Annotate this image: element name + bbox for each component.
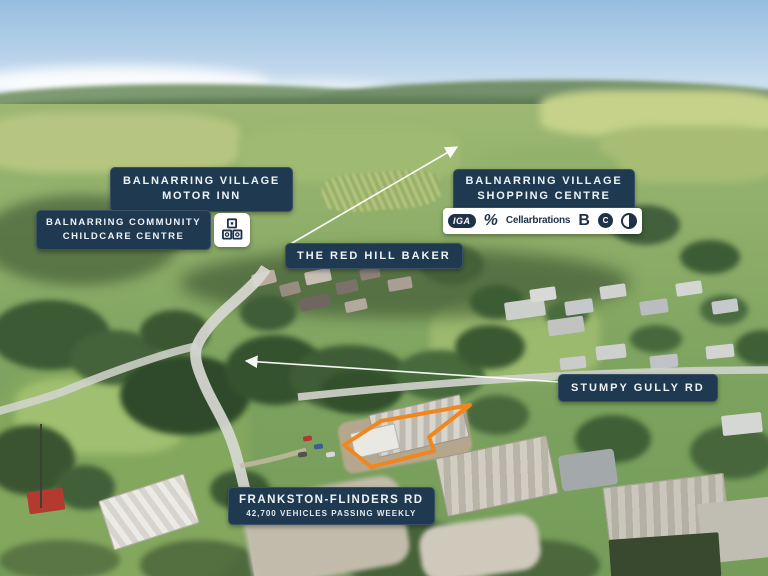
cellarbrations-logo: Cellarbrations (506, 215, 570, 226)
half-circle-logo-icon (621, 213, 637, 229)
shopping-centre-logo-strip: IGA % Cellarbrations B C (443, 208, 642, 234)
label-motor-inn-line2: MOTOR INN (123, 189, 280, 204)
pointer-arrow-northeast (287, 147, 457, 246)
label-red-hill-baker-text: THE RED HILL BAKER (297, 250, 451, 262)
label-shopping-centre: BALNARRING VILLAGE SHOPPING CENTRE (453, 169, 635, 208)
label-childcare: BALNARRING COMMUNITY CHILDCARE CENTRE (36, 210, 211, 250)
pointer-arrow-stumpy-gully (246, 361, 560, 382)
label-motor-inn: BALNARRING VILLAGE MOTOR INN (110, 167, 293, 212)
label-childcare-group: BALNARRING COMMUNITY CHILDCARE CENTRE (36, 210, 250, 250)
label-frankston-flinders-line2: 42,700 VEHICLES PASSING WEEKLY (239, 509, 424, 518)
circle-c-logo-icon: C (598, 213, 613, 228)
label-shopping-centre-line1: BALNARRING VILLAGE (454, 174, 634, 189)
label-childcare-line2: CHILDCARE CENTRE (46, 230, 201, 244)
label-frankston-flinders-rd: FRANKSTON-FLINDERS RD 42,700 VEHICLES PA… (228, 487, 435, 525)
label-childcare-line1: BALNARRING COMMUNITY (46, 216, 201, 230)
label-shopping-centre-group: BALNARRING VILLAGE SHOPPING CENTRE IGA %… (443, 169, 642, 234)
b-logo-icon: B (578, 212, 590, 230)
property-boundary-highlight (344, 405, 470, 467)
percent-logo-icon: % (484, 212, 498, 230)
label-shopping-centre-line2: SHOPPING CENTRE (454, 189, 634, 204)
aerial-photo: BALNARRING VILLAGE MOTOR INN BALNARRING … (0, 0, 768, 576)
label-stumpy-gully-rd: STUMPY GULLY RD (558, 374, 718, 402)
label-stumpy-gully-rd-text: STUMPY GULLY RD (571, 382, 705, 394)
toy-blocks-icon (214, 213, 250, 247)
label-frankston-flinders-line1: FRANKSTON-FLINDERS RD (239, 494, 424, 506)
label-motor-inn-line1: BALNARRING VILLAGE (123, 174, 280, 189)
label-red-hill-baker: THE RED HILL BAKER (285, 243, 463, 269)
iga-logo: IGA (448, 214, 476, 228)
